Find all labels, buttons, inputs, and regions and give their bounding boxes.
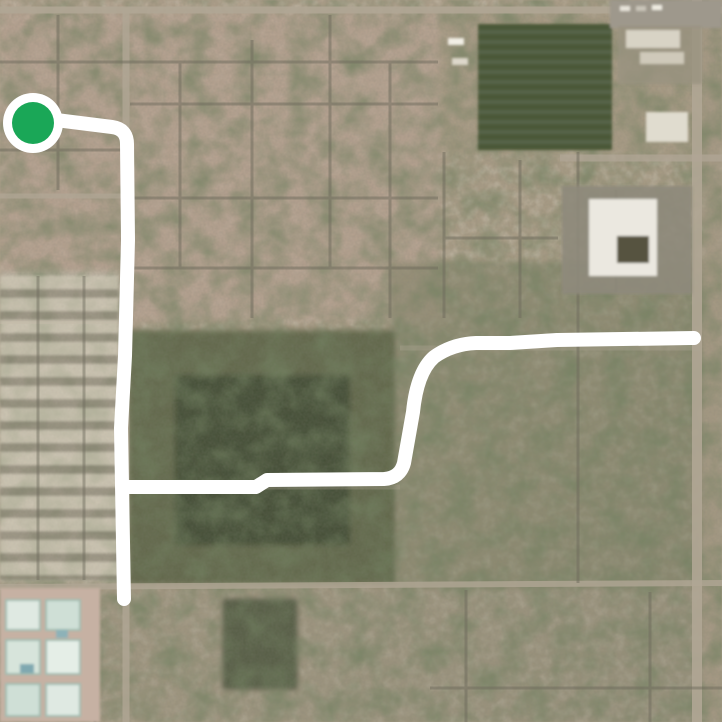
building-northeast-3 [646,112,688,142]
road-horizontal-south [0,583,722,587]
truck [452,58,468,65]
start-marker-dot [12,102,54,144]
building-northeast-2 [640,52,684,64]
car [636,6,646,11]
satellite-map-canvas[interactable] [0,0,722,722]
green-field [478,24,612,150]
resort-building [6,684,40,716]
condo-rows [0,276,118,580]
resort-pool [56,630,68,638]
resort-pool [20,664,34,673]
route-start-marker[interactable] [3,93,63,153]
resort-building [46,684,80,716]
building-northeast-1 [626,30,680,48]
truck [448,38,464,45]
parking-top-right [610,0,722,28]
white-building-courtyard [617,236,649,263]
resort-building [46,640,80,674]
car [652,5,662,10]
car [620,6,630,11]
satellite-map[interactable] [0,0,722,722]
resort-building [46,600,80,630]
resort-building [6,600,40,630]
resort-complex-southwest [0,588,100,722]
